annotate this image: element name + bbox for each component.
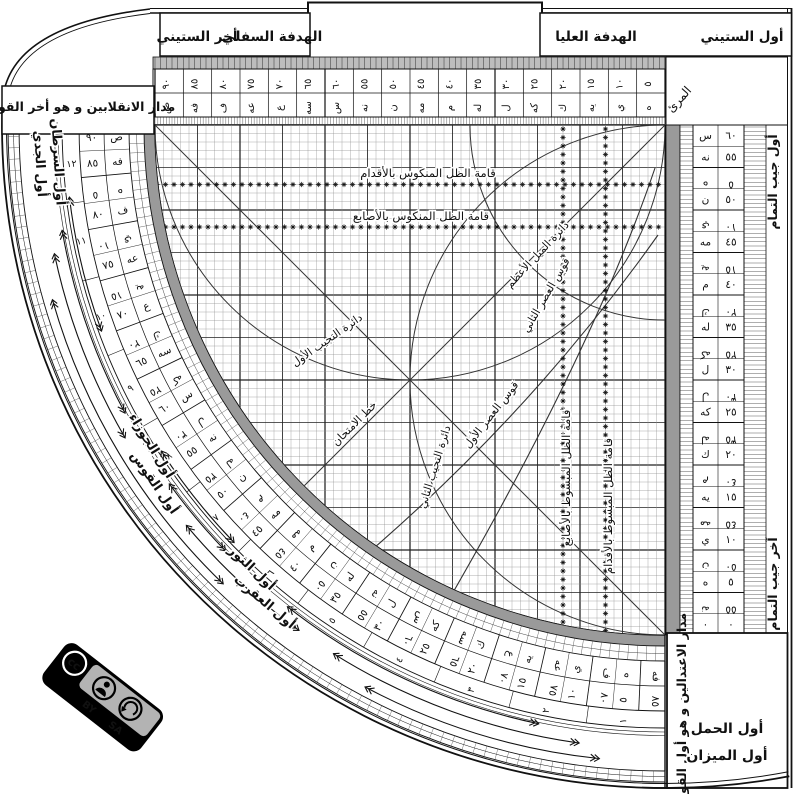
scale-numeral: ٧٠ bbox=[115, 307, 130, 322]
scale-numeral: ٤٥ bbox=[725, 236, 736, 248]
scale-numeral: ٣٥ bbox=[473, 79, 484, 90]
grid-label-mabsut-digits: قامة الظل المبسوط بالأصابع bbox=[559, 410, 574, 547]
scale-numeral: ٣ bbox=[466, 686, 478, 694]
scale-numeral: ل bbox=[196, 415, 209, 429]
zodiac-arrow bbox=[62, 231, 124, 412]
scale-numeral: س bbox=[331, 102, 342, 114]
scale-numeral: ع bbox=[275, 105, 286, 111]
scale-numeral: ٠ bbox=[728, 619, 734, 631]
scale-numeral: ف bbox=[600, 667, 613, 679]
scale-numeral: فه bbox=[190, 103, 201, 113]
scale-numeral: ٤٠ bbox=[236, 509, 252, 525]
scale-numeral: ١٠ bbox=[566, 687, 580, 700]
scale-numeral: ٥٥ bbox=[360, 79, 371, 90]
cosine-end-label: آخر جيب التمام bbox=[765, 537, 781, 631]
sight-vane-notch bbox=[308, 3, 542, 14]
scale-numeral: ي bbox=[701, 534, 709, 546]
scale-numeral: ١٥ bbox=[515, 676, 529, 690]
scale-numeral: ٣٠ bbox=[501, 79, 512, 90]
scale-numeral: ٢٠ bbox=[465, 661, 480, 676]
scale-numeral: ٥ bbox=[327, 616, 339, 626]
scale-numeral: ١٠ bbox=[615, 79, 626, 90]
scale-numeral: ٣٠ bbox=[371, 617, 387, 633]
scale-numeral: ٧٥ bbox=[101, 258, 115, 272]
scale-numeral: ٤٥ bbox=[272, 545, 288, 561]
zodiac-aries: أول الحمل bbox=[691, 719, 764, 737]
zodiac-libra: أول الميزان bbox=[686, 746, 767, 764]
scale-numeral: ٦٠ bbox=[157, 400, 173, 416]
scale-numeral: ٥ bbox=[643, 81, 654, 86]
scale-numeral: ٢ bbox=[541, 707, 553, 714]
scale-numeral: كه bbox=[530, 103, 541, 113]
scale-numeral: ٤٠ bbox=[287, 558, 303, 574]
scale-numeral: ٥٥ bbox=[354, 607, 370, 623]
scale-numeral: ٨٥ bbox=[649, 696, 661, 708]
sine-quadrant-page: ص٩٠فه٨٥ه٥ف٨٠ي١٠عه٧٥يه١٥ع٧٠ك٢٠سه٦٥كه٢٥س٦٠… bbox=[0, 0, 794, 794]
zodiac-arrow bbox=[288, 607, 538, 723]
scale-numeral: ع bbox=[503, 649, 517, 659]
scale-numeral: ٩٠ bbox=[161, 79, 172, 90]
scale-numeral: ٤٥ bbox=[416, 79, 427, 90]
scale-numeral: نه bbox=[368, 587, 383, 601]
scale-numeral: ٠ bbox=[703, 619, 709, 631]
scale-numeral: كه bbox=[170, 372, 185, 388]
scale-numeral: سه bbox=[303, 101, 314, 115]
scale-numeral: ٦٥ bbox=[303, 79, 314, 90]
scale-numeral: ١٠ bbox=[97, 239, 110, 253]
grid-label-mankus-feet: قامة الظل المنكوس بالأقدام bbox=[360, 166, 495, 181]
scale-numeral: ل bbox=[702, 364, 710, 376]
scale-numeral: ي bbox=[123, 234, 133, 247]
scale-numeral: ي bbox=[570, 664, 583, 674]
scale-numeral: له bbox=[223, 455, 237, 470]
scale-numeral: ٦٠ bbox=[399, 633, 415, 648]
scale-numeral: ٧٥ bbox=[546, 684, 560, 697]
scale-numeral: ن bbox=[702, 194, 710, 206]
scale-numeral: س bbox=[178, 388, 195, 405]
scale-numeral: ١٠ bbox=[725, 534, 736, 546]
header-start-sixty: أول الستيني bbox=[700, 28, 783, 45]
scale-numeral: سه bbox=[155, 344, 173, 361]
scale-numeral: عه bbox=[246, 102, 257, 113]
scale-numeral: ٣٠ bbox=[173, 428, 189, 444]
scale-numeral: ي bbox=[615, 104, 626, 112]
zodiac-capricorn: أول الجدي bbox=[30, 130, 51, 197]
header-upper-sight: الهدفة العليا bbox=[555, 29, 637, 45]
scale-numeral: ٥٠ bbox=[215, 485, 231, 501]
scale-numeral: ٣٥ bbox=[725, 321, 736, 333]
scale-numeral: سه bbox=[455, 629, 472, 647]
zodiac-arrow bbox=[366, 687, 599, 758]
scale-numeral: ه bbox=[643, 105, 654, 110]
scale-numeral: ه bbox=[117, 186, 124, 199]
scale-numeral: س bbox=[410, 610, 427, 627]
scale-numeral: ٥٠ bbox=[725, 194, 736, 206]
scale-numeral: يه bbox=[701, 491, 710, 503]
scale-numeral: يه bbox=[135, 282, 147, 296]
scale-numeral: عه bbox=[125, 252, 139, 267]
scale-numeral: له bbox=[343, 570, 358, 584]
scale-numeral: ٧ bbox=[211, 512, 222, 524]
scale-numeral: ٢٥ bbox=[417, 641, 433, 656]
scale-numeral: ٧٥ bbox=[246, 79, 257, 90]
scale-numeral: ١٥ bbox=[586, 79, 597, 90]
scale-numeral: م bbox=[304, 541, 317, 554]
scale-numeral: ٥٥ bbox=[184, 444, 200, 460]
scale-numeral: يه bbox=[586, 104, 597, 112]
scale-numeral: فه bbox=[650, 671, 662, 682]
scale-numeral: نه bbox=[205, 431, 219, 446]
scale-numeral: ه bbox=[703, 576, 709, 588]
scale-numeral: كه bbox=[428, 619, 443, 634]
scale-numeral: ن bbox=[388, 104, 399, 111]
scale-numeral: ١٥ bbox=[725, 491, 736, 503]
scale-numeral: ك bbox=[151, 328, 164, 342]
scale-numeral: س bbox=[699, 130, 712, 142]
scale-numeral: ٦٠ bbox=[331, 79, 342, 90]
scale-numeral: مه bbox=[267, 506, 283, 522]
scale-numeral: م bbox=[702, 279, 709, 291]
scale-numeral: ٨٠ bbox=[597, 692, 610, 705]
scale-numeral: ٦٠ bbox=[725, 130, 736, 142]
scale-numeral: ٦٥ bbox=[447, 654, 462, 669]
cosine-start-label: أول جيب التمام bbox=[764, 134, 781, 229]
scale-numeral: ف bbox=[116, 204, 129, 218]
scale-numeral: ٣٥ bbox=[202, 470, 218, 486]
scale-numeral: مه bbox=[416, 103, 427, 114]
scale-numeral: ٥ bbox=[617, 697, 629, 703]
scale-numeral: ٤٠ bbox=[445, 79, 456, 90]
scale-numeral: مه bbox=[289, 527, 305, 543]
scale-numeral: ن bbox=[328, 560, 342, 573]
scale-numeral: ٧٠ bbox=[496, 671, 511, 685]
sine-quadrant-diagram: ص٩٠فه٨٥ه٥ف٨٠ي١٠عه٧٥يه١٥ع٧٠ك٢٠سه٦٥كه٢٥س٦٠… bbox=[0, 0, 794, 794]
scale-numeral: ن bbox=[235, 470, 249, 484]
grid-label-mabsut-feet: قامة الظل المبسوط بالأقدام bbox=[601, 438, 616, 574]
scale-numeral: ١٥ bbox=[109, 288, 123, 303]
scale-numeral: ٤٥ bbox=[249, 523, 265, 539]
scale-numeral: ٢٠ bbox=[558, 79, 569, 90]
zodiac-arrow bbox=[55, 255, 125, 437]
scale-numeral: ل bbox=[501, 104, 512, 111]
header-lower-sight: الهدفة السفلي bbox=[222, 29, 322, 45]
scale-numeral: ٨٠ bbox=[218, 79, 229, 90]
scale-numeral: ٦٥ bbox=[134, 355, 149, 371]
scale-numeral: ٣٠ bbox=[725, 364, 736, 376]
scale-numeral: نه bbox=[701, 151, 710, 163]
scale-numeral: ع bbox=[141, 299, 152, 313]
scale-numeral: ٤٠ bbox=[725, 279, 736, 291]
scale-numeral: ٨٥ bbox=[87, 157, 99, 170]
scale-numeral: عه bbox=[551, 659, 565, 673]
equinox-orbit-label: مدار الاعتدالين و هو أول القوس bbox=[673, 613, 689, 794]
scale-numeral: ك bbox=[474, 639, 488, 651]
scale-numeral: ٩ bbox=[126, 383, 135, 395]
solstice-orbit-label: مدار الانقلابين و هو أخر القوس bbox=[0, 98, 175, 114]
scale-numeral: ٥٠ bbox=[388, 79, 399, 90]
top-sixty-scale: ٩٠ص٨٥فه٨٠ف٧٥عه٧٠ع٦٥سه٦٠س٥٥نه٥٠ن٤٥مه٤٠م٣٥… bbox=[153, 57, 665, 125]
scale-numeral: م bbox=[256, 494, 269, 507]
scale-numeral: ١ bbox=[618, 718, 629, 724]
scale-numeral: ٧٠ bbox=[275, 79, 286, 90]
scale-numeral: يه bbox=[521, 653, 535, 664]
scale-numeral: فه bbox=[112, 156, 123, 169]
scale-numeral: ك bbox=[558, 104, 569, 112]
scale-numeral: ٥٥ bbox=[725, 151, 736, 163]
scale-numeral: له bbox=[701, 321, 710, 333]
scale-numeral: ٨٥ bbox=[190, 79, 201, 90]
scale-numeral: م bbox=[445, 105, 456, 111]
scale-numeral: له bbox=[473, 104, 484, 112]
scale-numeral: ٢٠ bbox=[725, 449, 736, 461]
scale-numeral: ٣٥ bbox=[328, 590, 344, 606]
scale-numeral: ١٢ bbox=[66, 159, 77, 171]
scale-numeral: ٥ bbox=[728, 576, 734, 588]
scale-numeral: ٤ bbox=[394, 655, 406, 664]
scale-numeral: مه bbox=[700, 236, 711, 248]
scale-numeral: نه bbox=[360, 104, 371, 112]
scale-numeral: ٢٠ bbox=[126, 337, 141, 352]
grid-label-mankus-digits: قامة الظل المنكوس بالأصابع bbox=[353, 209, 489, 224]
scale-numeral: ف bbox=[218, 103, 229, 113]
cc-license-badge: ccBYSA bbox=[39, 640, 166, 755]
scale-numeral: ك bbox=[701, 449, 710, 461]
scale-numeral: ل bbox=[385, 597, 399, 610]
scale-numeral: ٢٥ bbox=[530, 79, 541, 90]
scale-numeral: ه bbox=[619, 672, 631, 678]
scale-numeral: ٥ bbox=[92, 189, 99, 202]
scale-numeral: ٨٠ bbox=[92, 208, 105, 222]
scale-numeral: ٢٥ bbox=[725, 406, 736, 418]
scale-numeral: كه bbox=[700, 406, 711, 418]
